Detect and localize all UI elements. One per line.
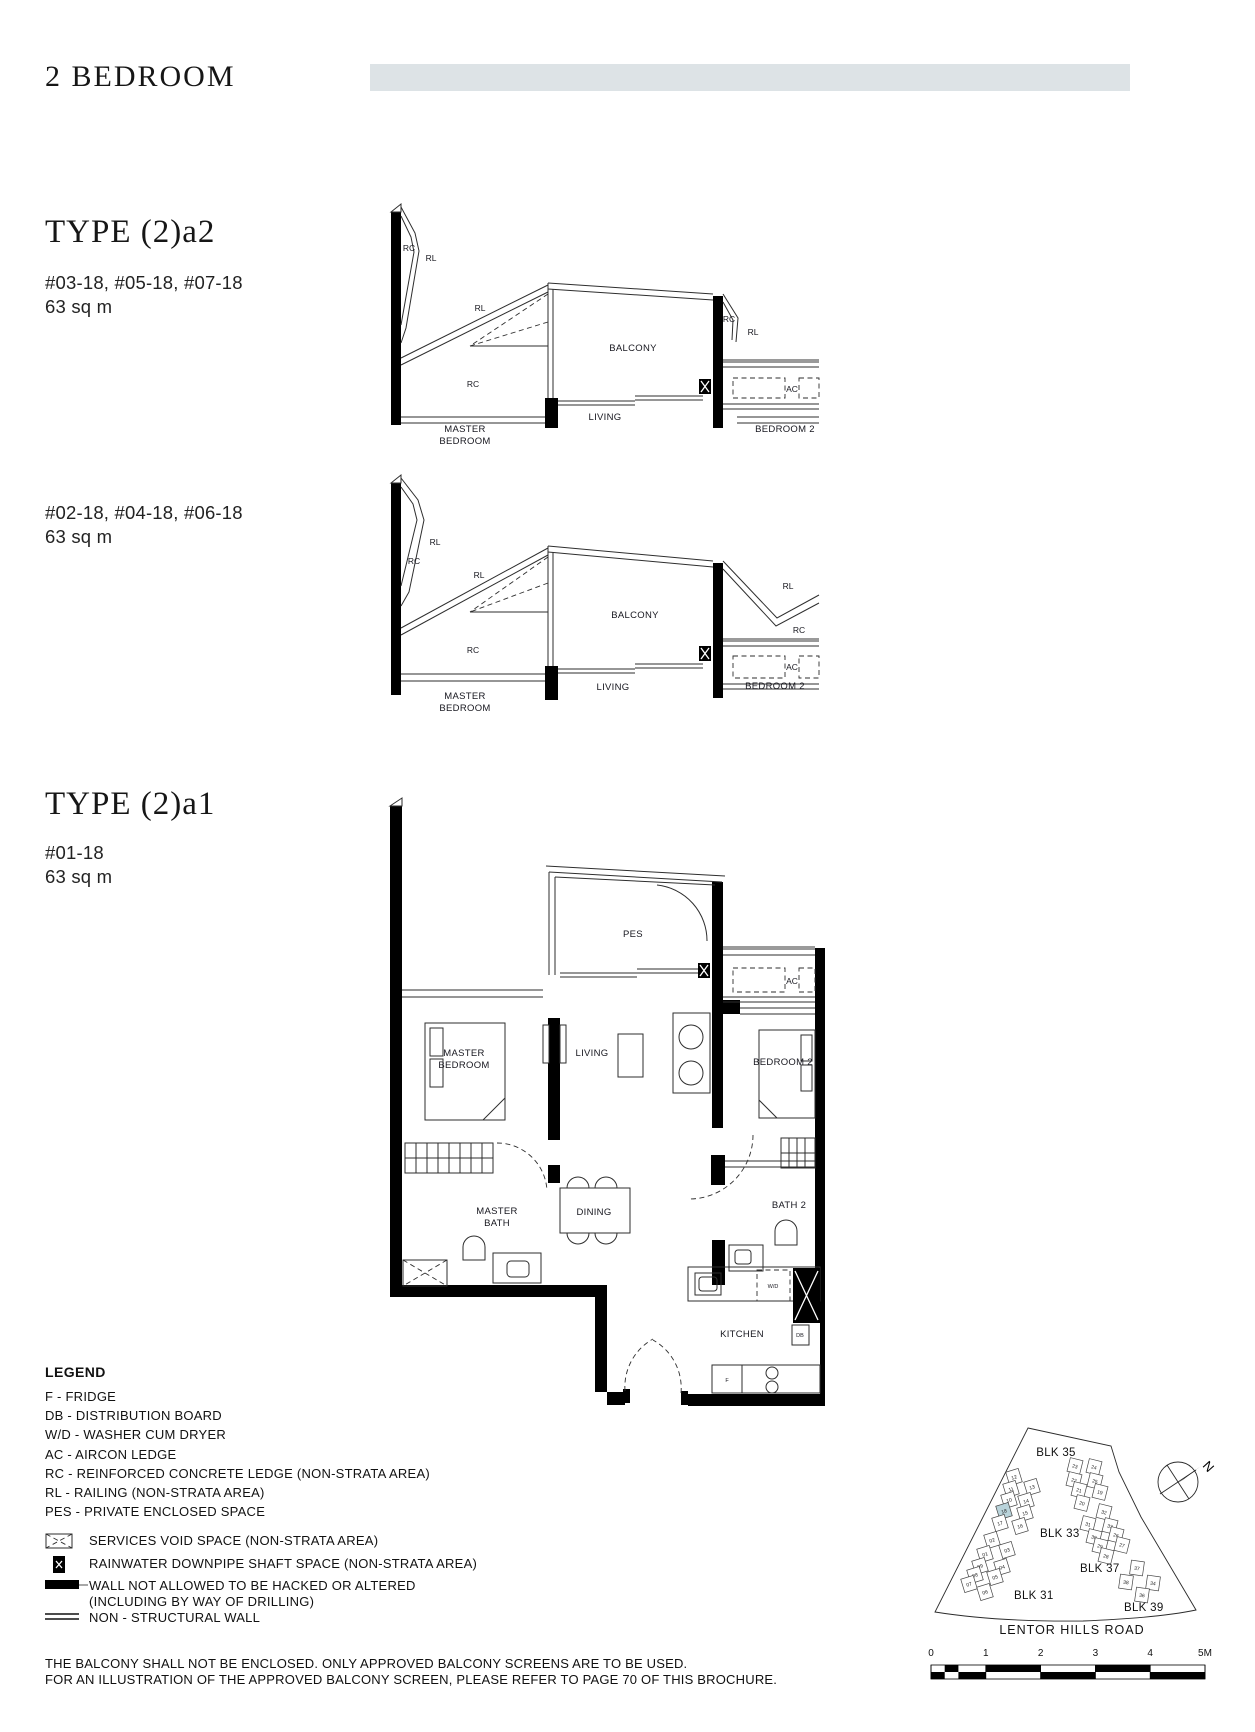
master-bedroom-furniture xyxy=(402,990,566,1191)
site-unit-13: 13 xyxy=(1024,1478,1041,1495)
rc-label: RC xyxy=(408,556,420,566)
type-a2-lower-units: #02-18, #04-18, #06-18 xyxy=(45,502,243,524)
balcony-label: BALCONY xyxy=(609,343,657,354)
legend-item: RC - REINFORCED CONCRETE LEDGE (NON-STRA… xyxy=(45,1464,430,1483)
scale-tick: 2 xyxy=(1038,1648,1044,1659)
rainwater-downpipe-icon xyxy=(45,1556,89,1579)
bedroom2-label: BEDROOM 2 xyxy=(755,424,815,435)
north-label: N xyxy=(1200,1458,1217,1475)
site-unit-38: 38 xyxy=(1119,1574,1134,1590)
railings-ledges xyxy=(401,478,819,635)
master-bath-fixtures xyxy=(403,1236,541,1286)
legend-symbol-line2: (INCLUDING BY WAY OF DRILLING) xyxy=(89,1594,416,1610)
svg-text:37: 37 xyxy=(1134,1566,1141,1573)
rc-label: RC xyxy=(403,243,415,253)
window-sills xyxy=(401,417,545,423)
dining-label: DINING xyxy=(576,1207,611,1218)
legend-item: RL - RAILING (NON-STRATA AREA) xyxy=(45,1483,430,1502)
type-a1-area: 63 sq m xyxy=(45,866,112,888)
fridge-label: F xyxy=(725,1378,729,1384)
legend-symbol-row: WALL NOT ALLOWED TO BE HACKED OR ALTERED… xyxy=(45,1578,416,1610)
floorplan-type-2a2-lower: RL RC RL RC BALCONY RL RC AC MASTER BEDR… xyxy=(385,450,825,715)
master-bedroom-label: MASTER xyxy=(443,1048,484,1059)
blk-37-label: BLK 37 xyxy=(1080,1563,1120,1575)
master-bedroom-label: BEDROOM xyxy=(438,1060,489,1071)
legend-symbol-row: NON - STRUCTURAL WALL xyxy=(45,1610,260,1628)
blk-39-label: BLK 39 xyxy=(1124,1602,1164,1614)
washer-dryer-label: W/D xyxy=(768,1284,779,1290)
rc-label: RC xyxy=(723,314,735,324)
type-a1-title: TYPE (2)a1 xyxy=(45,786,215,823)
disclaimer-line1: THE BALCONY SHALL NOT BE ENCLOSED. ONLY … xyxy=(45,1656,777,1672)
scale-tick: 4 xyxy=(1147,1648,1153,1659)
site-unit-06: 06 xyxy=(977,1583,994,1600)
walls xyxy=(390,798,825,1406)
disclaimer-line2: FOR AN ILLUSTRATION OF THE APPROVED BALC… xyxy=(45,1672,777,1688)
legend-symbol-row: SERVICES VOID SPACE (NON-STRATA AREA) xyxy=(45,1533,378,1555)
master-bedroom-label: MASTER xyxy=(444,691,485,702)
legend-title: LEGEND xyxy=(45,1364,430,1380)
site-unit-36: 36 xyxy=(1135,1587,1150,1603)
living-furniture xyxy=(618,1013,710,1093)
svg-text:34: 34 xyxy=(1150,1581,1157,1588)
legend-symbol-label: SERVICES VOID SPACE (NON-STRATA AREA) xyxy=(89,1533,378,1549)
type-a2-upper-units: #03-18, #05-18, #07-18 xyxy=(45,272,243,294)
legend-item: PES - PRIVATE ENCLOSED SPACE xyxy=(45,1502,430,1521)
blk-35-label: BLK 35 xyxy=(1036,1447,1076,1459)
svg-text:36: 36 xyxy=(1139,1593,1146,1600)
master-bedroom-label: BEDROOM xyxy=(439,703,490,714)
legend-symbol-label: NON - STRUCTURAL WALL xyxy=(89,1610,260,1626)
rainwater-shaft-icon xyxy=(699,379,711,394)
bedroom2-label: BEDROOM 2 xyxy=(745,681,805,692)
walls xyxy=(391,204,723,428)
legend-symbol-label: RAINWATER DOWNPIPE SHAFT SPACE (NON-STRA… xyxy=(89,1556,477,1572)
type-a2-upper-area: 63 sq m xyxy=(45,296,112,318)
rl-label: RL xyxy=(430,537,441,547)
living-label: LIVING xyxy=(589,412,622,423)
disclaimer: THE BALCONY SHALL NOT BE ENCLOSED. ONLY … xyxy=(45,1656,777,1688)
living-label: LIVING xyxy=(597,682,630,693)
bath2-label: BATH 2 xyxy=(772,1200,806,1211)
rl-label: RL xyxy=(426,253,437,263)
rl-label: RL xyxy=(783,581,794,591)
ac-label: AC xyxy=(786,976,798,986)
legend-item: DB - DISTRIBUTION BOARD xyxy=(45,1406,430,1425)
rc-label: RC xyxy=(467,645,479,655)
legend-symbol-line1: WALL NOT ALLOWED TO BE HACKED OR ALTERED xyxy=(89,1578,416,1594)
page-title: 2 BEDROOM xyxy=(45,60,236,94)
living-label: LIVING xyxy=(576,1048,609,1059)
site-unit-03: 03 xyxy=(999,1541,1016,1558)
legend-item: F - FRIDGE xyxy=(45,1387,430,1406)
no-hack-wall-icon xyxy=(45,1578,89,1597)
master-bedroom-label: MASTER xyxy=(444,424,485,435)
type-a1-units: #01-18 xyxy=(45,842,104,864)
blk-31-label: BLK 31 xyxy=(1014,1590,1054,1602)
legend-item: W/D - WASHER CUM DRYER xyxy=(45,1425,430,1444)
railings-ledges xyxy=(401,207,738,365)
services-void-icon xyxy=(45,1533,89,1555)
legend-symbol-label: WALL NOT ALLOWED TO BE HACKED OR ALTERED… xyxy=(89,1578,416,1610)
kitchen-label: KITCHEN xyxy=(720,1329,764,1340)
compass-icon: N xyxy=(1158,1458,1217,1502)
master-bedroom-label: BEDROOM xyxy=(439,436,490,447)
walls xyxy=(391,475,723,700)
pes-label: PES xyxy=(623,929,643,940)
aircon-ledge xyxy=(723,361,819,423)
type-a2-lower-area: 63 sq m xyxy=(45,526,112,548)
rc-label: RC xyxy=(467,379,479,389)
floorplan-type-2a1: PES AC MASTER BEDROOM LIVING BEDROOM 2 D… xyxy=(385,725,825,1415)
site-unit-24: 24 xyxy=(1086,1459,1102,1476)
scale-tick: 5M xyxy=(1198,1648,1212,1659)
rl-label: RL xyxy=(475,303,486,313)
type-a2-title: TYPE (2)a2 xyxy=(45,214,215,251)
brochure-page: 2 BEDROOM TYPE (2)a2 #03-18, #05-18, #07… xyxy=(0,0,1255,1732)
bedroom2-label: BEDROOM 2 xyxy=(753,1057,813,1068)
scale-tick: 1 xyxy=(983,1648,989,1659)
non-structural-wall-icon xyxy=(45,1610,89,1628)
master-bath-label: BATH xyxy=(484,1218,510,1229)
db-label: DB xyxy=(796,1333,804,1339)
rl-label: RL xyxy=(474,570,485,580)
site-unit-37: 37 xyxy=(1130,1560,1145,1576)
road-label: LENTOR HILLS ROAD xyxy=(999,1623,1144,1637)
legend: LEGEND F - FRIDGE DB - DISTRIBUTION BOAR… xyxy=(45,1364,430,1521)
site-unit-32: 32 xyxy=(1096,1504,1112,1521)
bedroom2-furniture xyxy=(759,1030,815,1168)
legend-symbol-row: RAINWATER DOWNPIPE SHAFT SPACE (NON-STRA… xyxy=(45,1556,477,1579)
scale-bar: 0 1 2 3 4 5M xyxy=(928,1648,1212,1679)
ac-label: AC xyxy=(786,384,798,394)
blk-33-label: BLK 33 xyxy=(1040,1528,1080,1540)
rainwater-shaft-icon xyxy=(699,646,711,661)
scale-tick: 0 xyxy=(928,1648,934,1659)
scale-tick: 3 xyxy=(1093,1648,1099,1659)
site-plan: 1211131014181517160203010904080507062324… xyxy=(828,1420,1255,1732)
svg-text:38: 38 xyxy=(1123,1580,1130,1587)
pes-outline xyxy=(546,866,725,977)
ac-label: AC xyxy=(786,662,798,672)
header-accent-bar xyxy=(370,64,1130,91)
floorplan-type-2a2-upper: RC RL RL RC BALCONY RC RL AC MASTER BEDR… xyxy=(385,195,825,450)
window-sills xyxy=(401,674,545,681)
master-bath-label: MASTER xyxy=(476,1206,517,1217)
rainwater-shaft-icon xyxy=(698,963,710,978)
rc-label: RC xyxy=(793,625,805,635)
site-unit-20: 20 xyxy=(1074,1495,1090,1512)
legend-item: AC - AIRCON LEDGE xyxy=(45,1445,430,1464)
balcony-label: BALCONY xyxy=(611,610,659,621)
rl-label: RL xyxy=(748,327,759,337)
